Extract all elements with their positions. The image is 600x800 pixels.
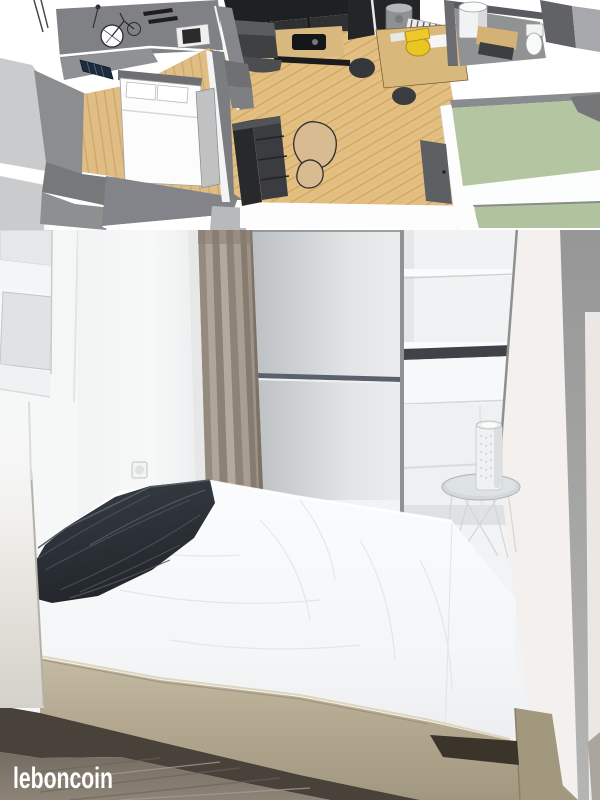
svg-text:leboncoin: leboncoin [13,762,113,795]
